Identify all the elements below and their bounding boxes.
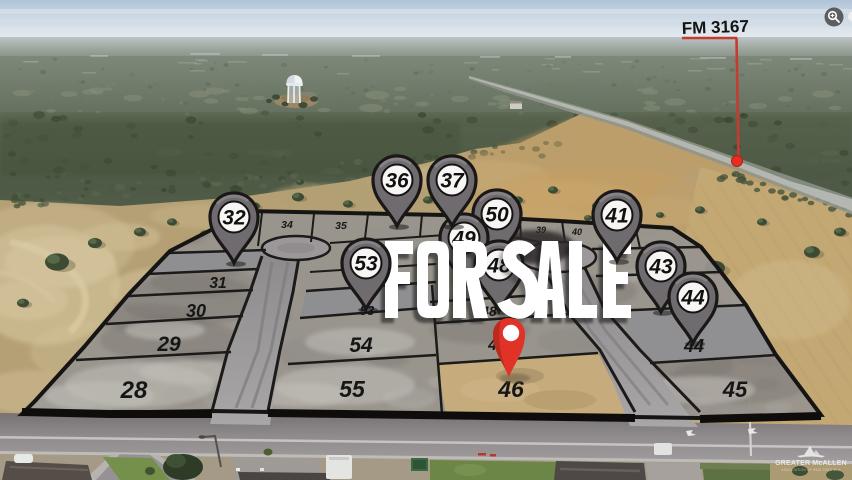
svg-text:43: 43: [648, 256, 673, 279]
svg-text:50: 50: [485, 204, 509, 227]
svg-text:45: 45: [722, 377, 748, 402]
svg-text:55: 55: [339, 376, 366, 402]
svg-text:29: 29: [156, 333, 181, 356]
svg-text:35: 35: [335, 220, 347, 232]
svg-text:44: 44: [680, 287, 705, 310]
svg-text:37: 37: [440, 170, 465, 193]
svg-text:30: 30: [186, 301, 206, 321]
svg-text:34: 34: [281, 219, 293, 231]
svg-text:ASSOCIATION OF REALTORS MLS: ASSOCIATION OF REALTORS MLS: [781, 468, 841, 472]
svg-text:32: 32: [222, 207, 246, 230]
svg-text:54: 54: [349, 334, 373, 357]
svg-text:28: 28: [120, 377, 148, 404]
svg-text:36: 36: [385, 170, 409, 193]
svg-text:40: 40: [571, 227, 582, 237]
svg-text:31: 31: [209, 275, 226, 292]
svg-text:41: 41: [604, 205, 628, 228]
svg-text:53: 53: [354, 253, 378, 276]
svg-text:FM 3167: FM 3167: [681, 17, 749, 38]
svg-text:GREATER McALLEN: GREATER McALLEN: [775, 460, 847, 467]
